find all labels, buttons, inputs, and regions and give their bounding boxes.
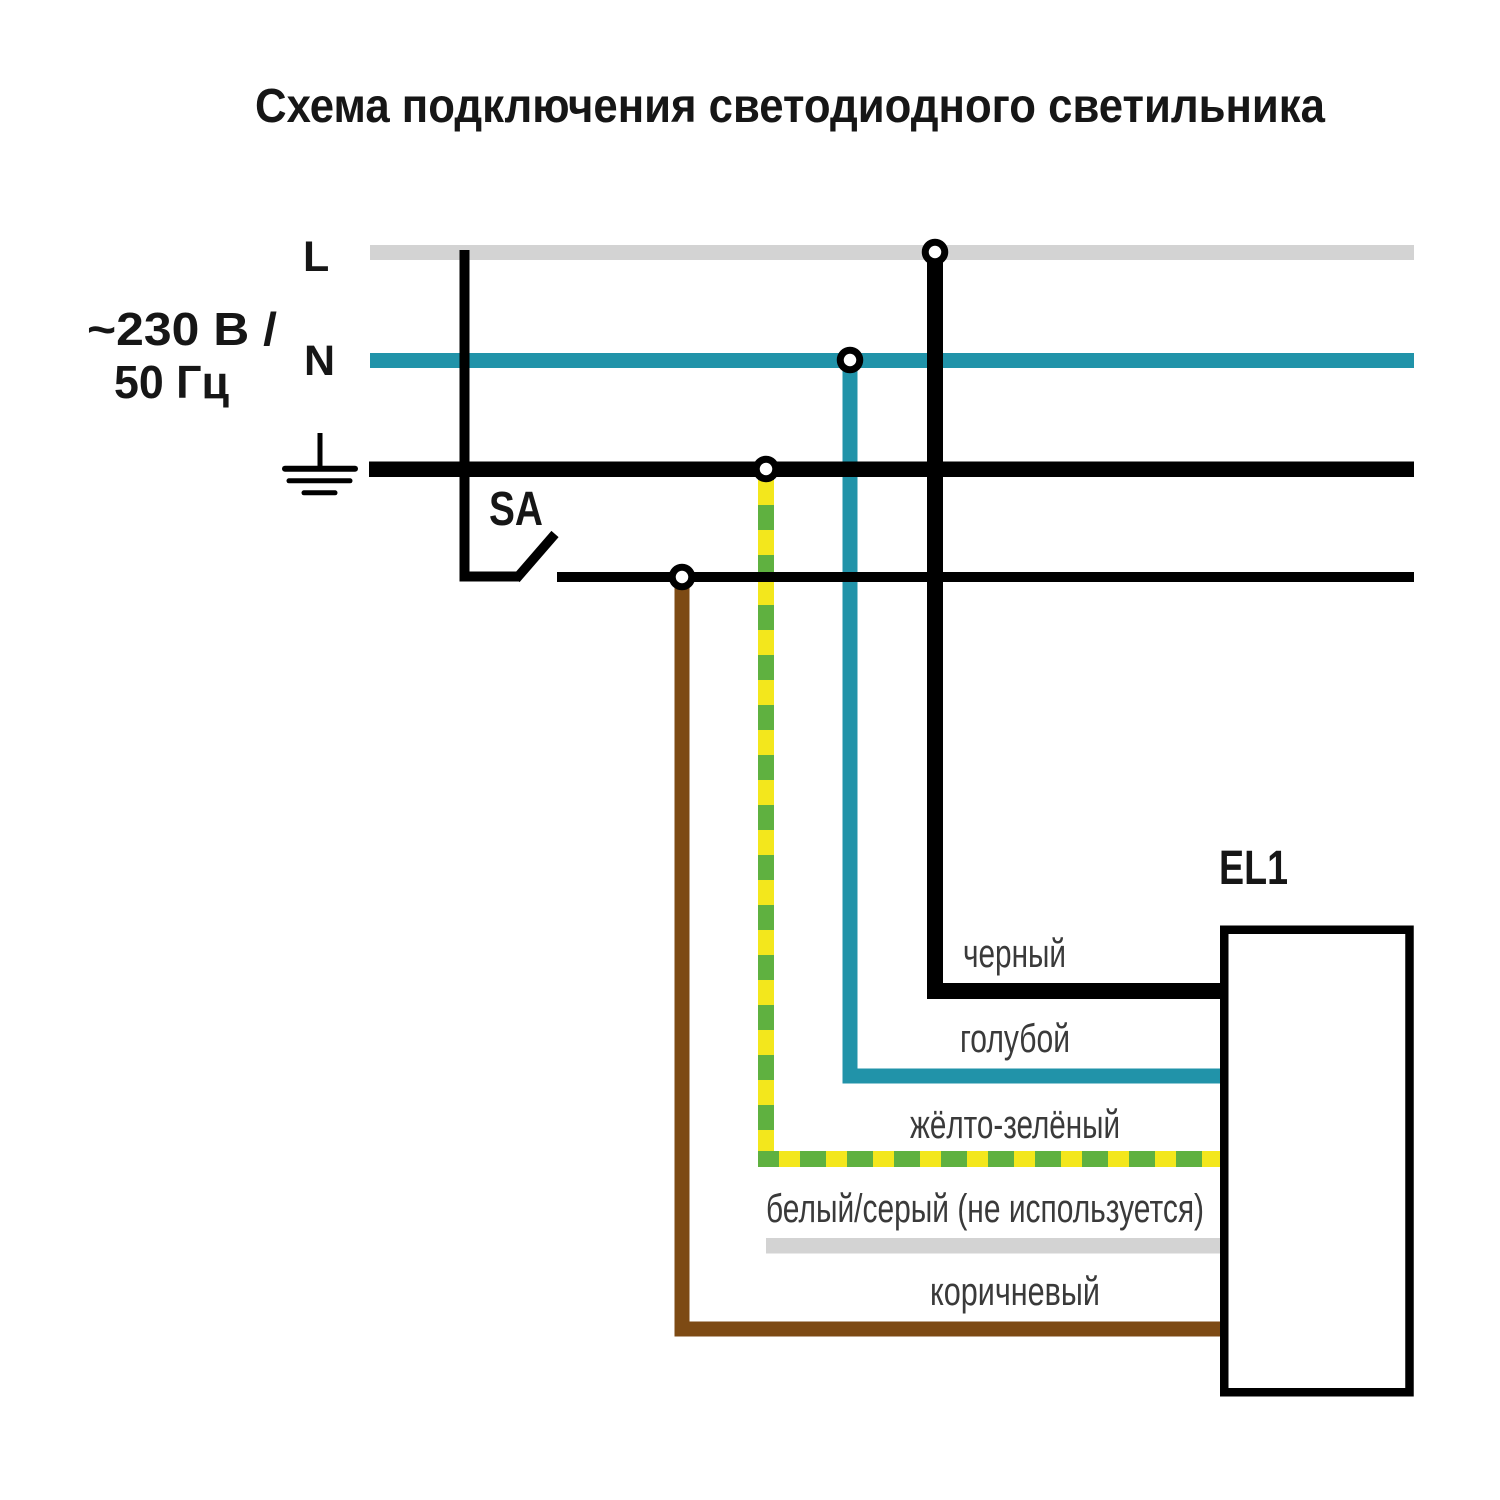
svg-text:L: L [303,233,329,281]
svg-text:голубой: голубой [960,1017,1070,1061]
svg-text:черный: черный [963,932,1066,976]
svg-text:50 Гц: 50 Гц [114,356,229,408]
svg-text:Схема подключения светодиодног: Схема подключения светодиодного светильн… [255,80,1325,133]
svg-text:жёлто-зелёный: жёлто-зелёный [910,1103,1120,1147]
svg-text:EL1: EL1 [1219,842,1288,895]
svg-text:~230 В /: ~230 В / [87,303,277,355]
svg-text:белый/серый (не используется): белый/серый (не используется) [766,1187,1204,1231]
svg-text:коричневый: коричневый [930,1270,1100,1314]
svg-text:SA: SA [489,483,543,536]
svg-text:N: N [304,337,335,385]
